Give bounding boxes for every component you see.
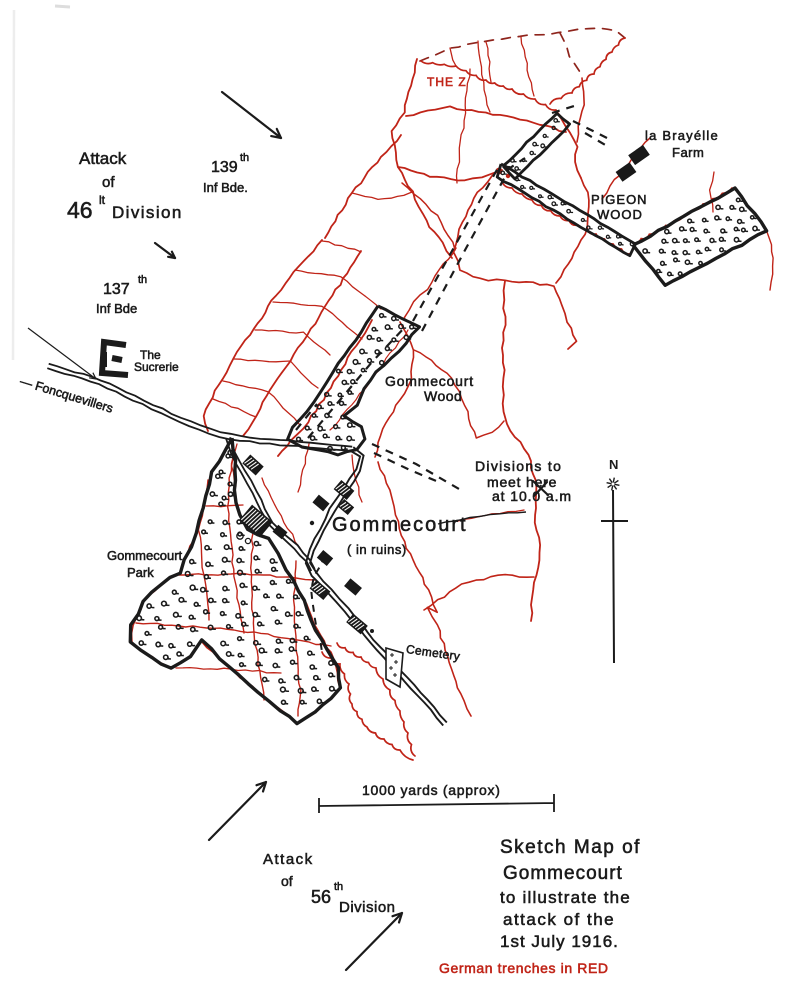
svg-text:N: N bbox=[609, 457, 618, 472]
